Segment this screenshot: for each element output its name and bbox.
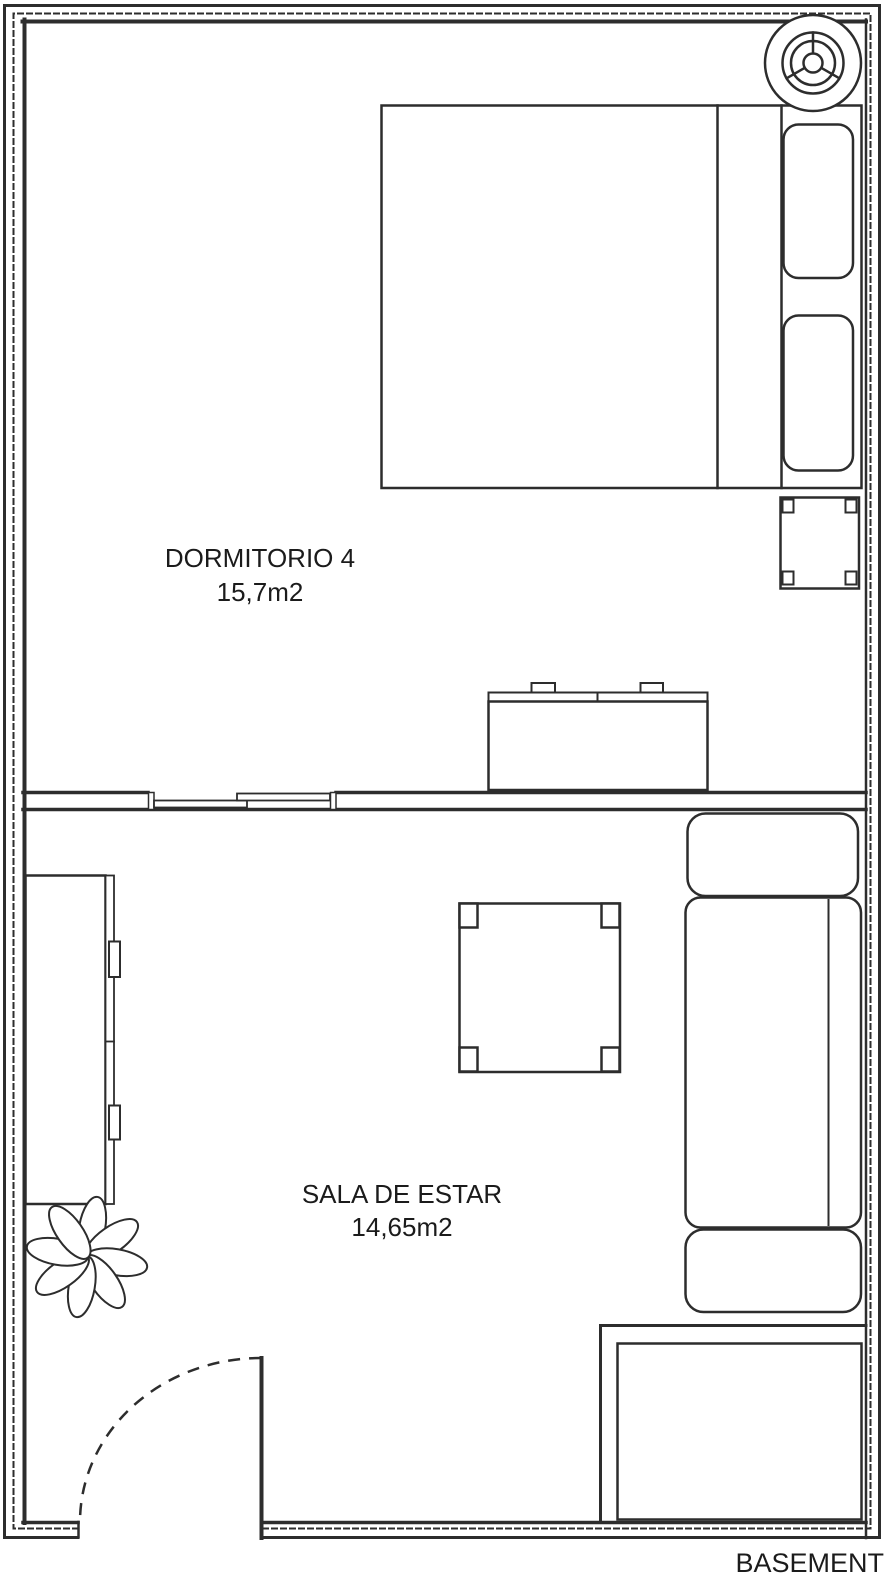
pillow <box>784 125 854 279</box>
room-area: 15,7m2 <box>110 575 410 609</box>
pillow <box>784 316 854 471</box>
dresser <box>489 683 708 790</box>
double-bed <box>382 106 862 489</box>
sofa <box>686 814 862 1313</box>
ceiling-fan-icon <box>765 15 861 111</box>
room-name: SALA DE ESTAR <box>252 1178 552 1211</box>
floor-plan-drawing <box>0 0 888 1584</box>
room-label-dormitorio: DORMITORIO 4 15,7m2 <box>110 541 410 609</box>
sofa-seat <box>686 898 862 1228</box>
entry-door-arc <box>80 1358 262 1538</box>
sofa-armrest <box>688 814 859 897</box>
floor-plan-page: DORMITORIO 4 15,7m2 SALA DE ESTAR 14,65m… <box>0 0 888 1584</box>
wardrobe <box>26 876 121 1205</box>
basement-caption: BASEMENT <box>630 1549 884 1577</box>
potted-plant <box>25 1195 150 1320</box>
coffee-table <box>460 904 621 1073</box>
sliding-door <box>149 793 337 810</box>
room-area: 14,65m2 <box>252 1211 552 1244</box>
nightstand <box>781 498 860 589</box>
sofa-armrest <box>686 1230 862 1313</box>
basement-void <box>601 1326 867 1523</box>
room-label-sala: SALA DE ESTAR 14,65m2 <box>252 1178 552 1244</box>
room-name: DORMITORIO 4 <box>110 541 410 575</box>
